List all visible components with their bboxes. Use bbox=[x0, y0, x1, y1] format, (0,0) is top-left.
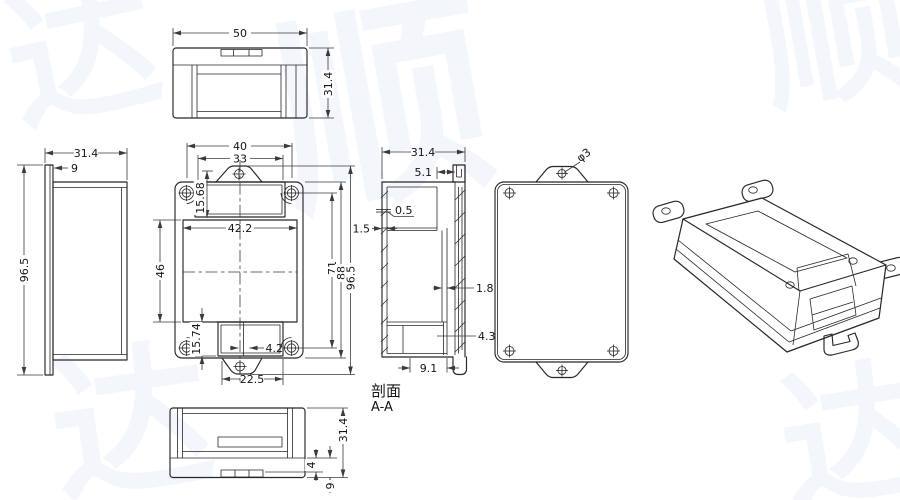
dim-top-depth-group: 31.4 bbox=[322, 70, 335, 98]
section-caption-aa: A-A bbox=[371, 400, 393, 415]
dim-section-lip: 5.1 bbox=[415, 166, 433, 179]
dim-left-depth: 31.4 bbox=[74, 147, 99, 160]
dim-front-body-height: 46 bbox=[154, 264, 167, 278]
dim-bottom-clip-depth: 9 bbox=[324, 483, 337, 490]
back-view: φ3 bbox=[495, 146, 628, 378]
dim-left-height: 96.5 bbox=[18, 258, 31, 283]
dim-section-boss: 4.3 bbox=[478, 330, 496, 343]
dim-front-top-recess-group: 15.68 bbox=[194, 181, 207, 215]
watermark-char: 达 bbox=[768, 340, 900, 500]
dim-front-bottom-recess: 15.74 bbox=[190, 323, 203, 355]
dim-front-body-width: 42.2 bbox=[228, 222, 253, 235]
dim-bottom-depth-group: 31.4 bbox=[337, 416, 350, 444]
dim-front-rib: 4.2 bbox=[266, 342, 284, 355]
iso-ear-icon bbox=[651, 199, 685, 224]
dim-front-total-height: 96.5 bbox=[344, 266, 357, 291]
dim-top-width: 50 bbox=[233, 27, 247, 40]
dim-front-opening-width: 33 bbox=[233, 152, 247, 165]
watermark-char: 顺 bbox=[746, 0, 900, 135]
dim-section-slot: 9.1 bbox=[420, 362, 438, 375]
dim-top-depth: 31.4 bbox=[322, 72, 335, 97]
section-foot bbox=[453, 357, 467, 375]
dim-section-inner-wall: 1.8 bbox=[476, 282, 494, 295]
technical-drawing-page: 顺 达 达 顺 达 50 31.4 bbox=[0, 0, 900, 500]
dim-back-hole: φ3 bbox=[574, 146, 593, 165]
dim-bottom-clip-depth-group: 9 bbox=[324, 480, 337, 492]
dim-bottom-depth: 31.4 bbox=[337, 418, 350, 443]
section-caption-cn: 剖面 bbox=[371, 382, 401, 400]
technical-drawing-canvas: 顺 达 达 顺 达 50 31.4 bbox=[0, 0, 900, 500]
dim-left-offset: 9 bbox=[71, 162, 78, 175]
dim-front-body-height-group: 46 bbox=[154, 262, 167, 280]
back-screws bbox=[503, 187, 620, 358]
dim-section-gap: 0.5 bbox=[395, 204, 413, 217]
dim-back-hole-group: φ3 bbox=[574, 146, 593, 165]
dim-front-total-height-group: 96.5 bbox=[344, 263, 357, 293]
dim-front-bottom-recess-group: 15.74 bbox=[190, 322, 203, 356]
dim-front-top-recess: 15.68 bbox=[194, 182, 207, 214]
watermark-char: 达 bbox=[0, 0, 174, 155]
dim-front-lip-width: 40 bbox=[233, 140, 247, 153]
dim-section-depth: 31.4 bbox=[411, 146, 436, 159]
dim-bottom-clip-height: 4 bbox=[305, 462, 318, 469]
watermark-char: 顺 bbox=[255, 0, 510, 250]
dim-left-height-group: 96.5 bbox=[18, 255, 31, 285]
dim-bottom-clip-height-group: 4 bbox=[305, 459, 318, 471]
front-bottom-tab bbox=[222, 358, 262, 374]
isometric-view bbox=[651, 178, 900, 355]
dim-section-wall: 1.5 bbox=[353, 222, 371, 235]
